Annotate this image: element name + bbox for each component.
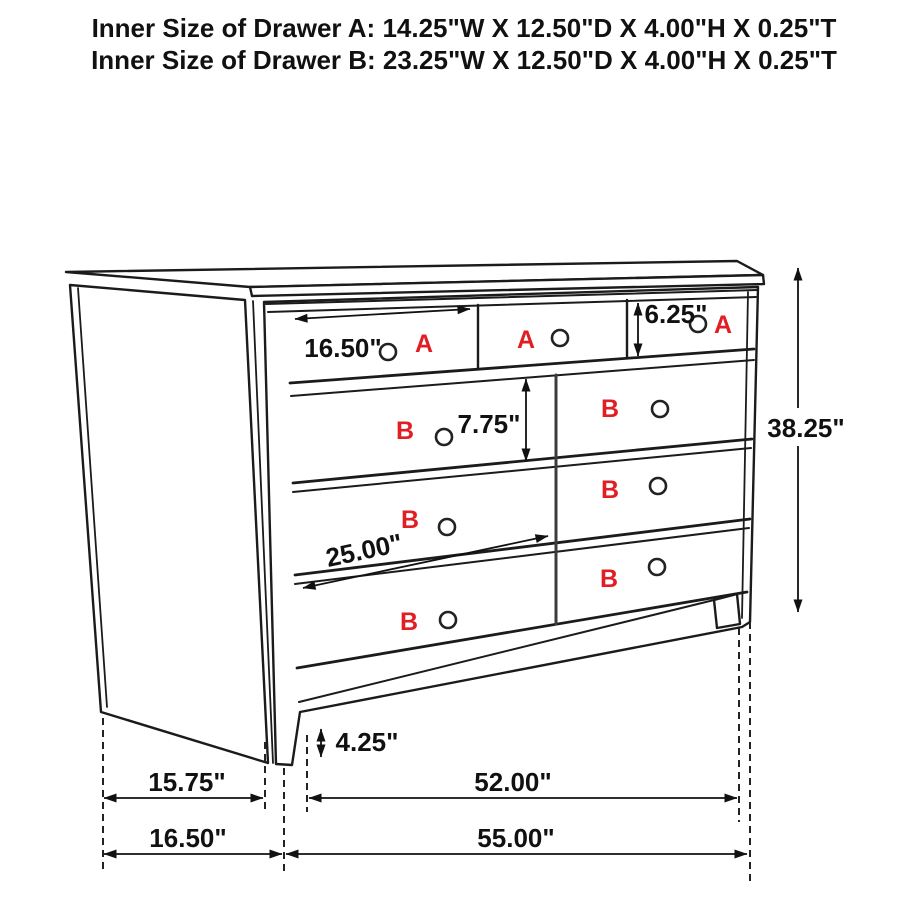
side-panel — [70, 285, 268, 763]
dim-drawer-a-width: 16.50" — [304, 333, 381, 363]
knob-b-left-1 — [436, 429, 452, 445]
drawer-label-b-right-3: B — [600, 565, 618, 593]
drawer-label-a3: A — [714, 311, 732, 339]
drawer-label-b-left-2: B — [401, 506, 419, 534]
knob-b-left-3 — [440, 612, 456, 628]
knob-a2 — [552, 330, 568, 346]
knob-b-right-1 — [652, 401, 668, 417]
knob-b-right-2 — [650, 478, 666, 494]
drawer-label-a1: A — [415, 330, 433, 358]
dim-overall-height: 38.25" — [767, 413, 844, 443]
dim-drawer-a-height: 6.25" — [645, 299, 708, 329]
knob-a1 — [380, 344, 396, 360]
title-line-2: Inner Size of Drawer B: 23.25"W X 12.50"… — [28, 44, 900, 76]
dim-base-width: 52.00" — [474, 767, 551, 797]
knob-b-right-3 — [649, 559, 665, 575]
dim-side-depth-total: 16.50" — [149, 823, 226, 853]
dim-leg-height: 4.25" — [336, 727, 399, 757]
knob-b-left-2 — [439, 519, 455, 535]
drawer-label-b-left-3: B — [400, 608, 418, 636]
right-leg — [714, 594, 740, 628]
title-block: Inner Size of Drawer A: 14.25"W X 12.50"… — [0, 12, 900, 76]
dim-drawer-b-height: 7.75" — [458, 409, 521, 439]
drawer-label-a2: A — [517, 326, 535, 354]
drawer-label-b-right-2: B — [601, 476, 619, 504]
diagram-canvas: Inner Size of Drawer A: 14.25"W X 12.50"… — [0, 0, 900, 900]
drawer-label-b-left-1: B — [396, 417, 414, 445]
dim-overall-width: 55.00" — [477, 823, 554, 853]
dresser-diagram: A A A B B B B B B — [0, 0, 900, 900]
drawer-label-b-right-1: B — [601, 395, 619, 423]
title-line-1: Inner Size of Drawer A: 14.25"W X 12.50"… — [28, 12, 900, 44]
dim-side-depth: 15.75" — [148, 767, 225, 797]
